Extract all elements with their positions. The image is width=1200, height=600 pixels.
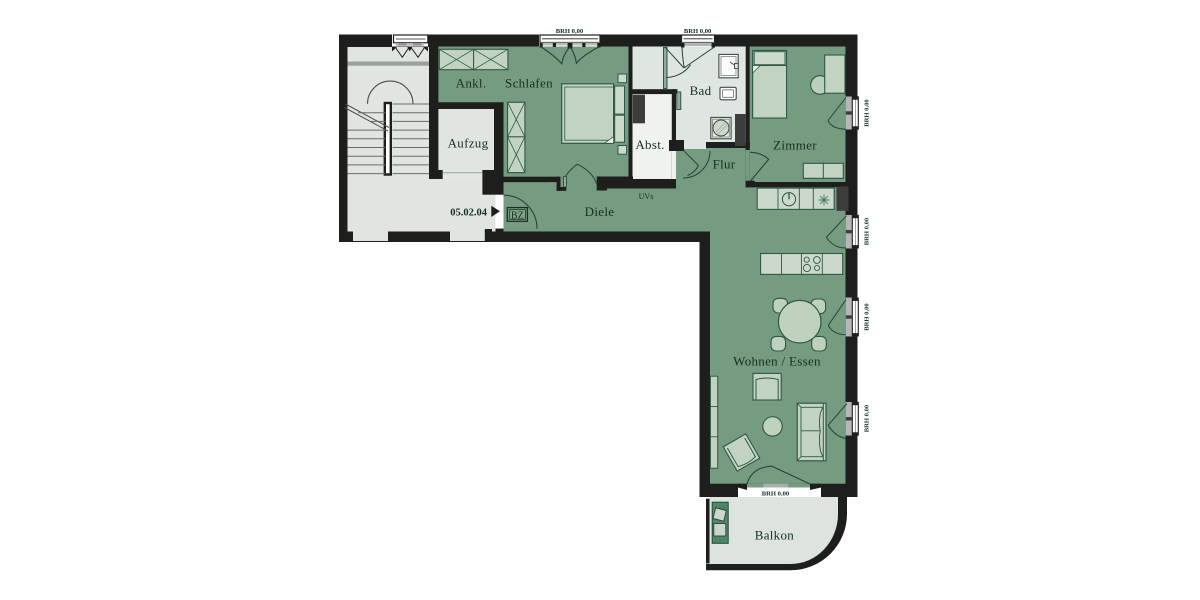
svg-text:UVs: UVs (639, 192, 654, 201)
svg-text:BRH 0,00: BRH 0,00 (864, 217, 871, 245)
svg-text:Diele: Diele (585, 204, 615, 219)
svg-text:Ankl.: Ankl. (456, 76, 487, 91)
svg-text:Balkon: Balkon (755, 528, 795, 543)
svg-text:BRH 0,00: BRH 0,00 (864, 99, 871, 127)
svg-text:Zimmer: Zimmer (773, 138, 817, 153)
svg-text:BRH 0,00: BRH 0,00 (556, 28, 584, 35)
svg-text:BZ: BZ (511, 210, 524, 221)
svg-text:Schlafen: Schlafen (505, 76, 553, 91)
svg-text:Bad: Bad (690, 83, 712, 98)
svg-text:Wohnen / Essen: Wohnen / Essen (733, 354, 821, 369)
svg-text:BRH 0,00: BRH 0,00 (762, 490, 790, 497)
svg-text:Aufzug: Aufzug (448, 136, 489, 151)
svg-text:Abst.: Abst. (635, 137, 664, 152)
svg-text:BRH 0,00: BRH 0,00 (864, 404, 871, 432)
svg-text:05.02.04: 05.02.04 (450, 208, 488, 219)
svg-text:Flur: Flur (713, 157, 736, 172)
svg-text:BRH 0,00: BRH 0,00 (684, 28, 712, 35)
svg-text:BRH 0,00: BRH 0,00 (864, 303, 871, 331)
